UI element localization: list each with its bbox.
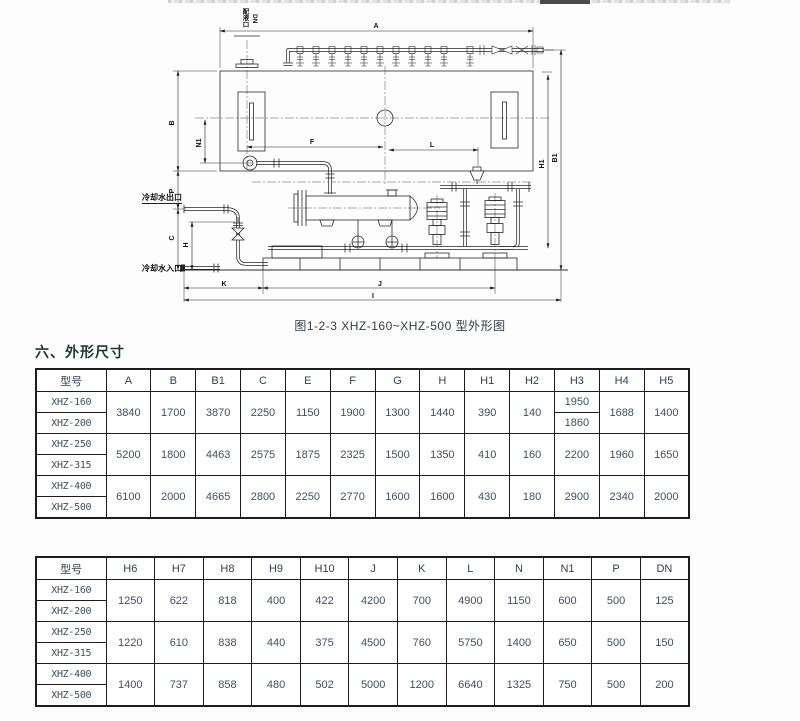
- value-cell: 2000: [644, 476, 689, 519]
- model-cell: XHZ-400: [36, 664, 106, 685]
- model-cell: XHZ-315: [36, 643, 106, 664]
- column-header: N1: [543, 557, 592, 580]
- value-cell: 5750: [446, 622, 495, 664]
- header-row: 型号H6H7H8H9H10JKLNN1PDN: [36, 557, 689, 580]
- column-header: P: [592, 557, 641, 580]
- value-cell: 6640: [446, 664, 495, 707]
- outline-drawing: A B N1 F L P C H H1 B1 K J I: [140, 6, 670, 312]
- column-header: H: [420, 369, 465, 392]
- table-row: XHZ-400610020004665280022502770160016004…: [36, 476, 689, 497]
- column-header: H4: [599, 369, 644, 392]
- outline-drawing-area: A B N1 F L P C H H1 B1 K J I: [140, 6, 670, 312]
- value-cell: 150: [640, 622, 689, 664]
- centerlines: [195, 40, 550, 258]
- value-cell: 1150: [285, 392, 330, 434]
- column-header: J: [349, 557, 398, 580]
- column-header: H9: [252, 557, 301, 580]
- value-cell: 422: [300, 580, 349, 622]
- column-header: B: [151, 369, 196, 392]
- clipped-text-artifact-dark: [540, 0, 590, 4]
- clipped-text-artifact: [168, 0, 730, 3]
- value-cell: 2000: [151, 476, 196, 519]
- value-cell: 760: [397, 622, 446, 664]
- value-cell: 1800: [151, 434, 196, 476]
- model-cell: XHZ-160: [36, 392, 106, 413]
- liquid-port-dn-label: DN: [251, 14, 258, 23]
- manual-page: { "colors": { "line": "#2a2a2a", "table_…: [0, 0, 800, 721]
- value-cell: 1200: [397, 664, 446, 707]
- value-cell: 1960: [599, 434, 644, 476]
- value-cell: 4200: [349, 580, 398, 622]
- column-header: 型号: [36, 557, 106, 580]
- value-cell: 430: [465, 476, 510, 519]
- value-cell: 3870: [196, 392, 241, 434]
- value-cell: 400: [252, 580, 301, 622]
- value-cell: 1440: [420, 392, 465, 434]
- column-header: H6: [106, 557, 155, 580]
- value-cell: 2200: [554, 434, 599, 476]
- value-cell: 3840: [106, 392, 151, 434]
- table-row: XHZ-250122061083844037545007605750140065…: [36, 622, 689, 643]
- value-cell: 500: [592, 580, 641, 622]
- column-header: N: [495, 557, 544, 580]
- value-cell: 5000: [349, 664, 398, 707]
- value-cell: 2340: [599, 476, 644, 519]
- value-cell: 838: [203, 622, 252, 664]
- value-cell: 1300: [375, 392, 420, 434]
- value-cell: 1150: [495, 580, 544, 622]
- plan-view: [220, 36, 533, 193]
- dim-label-c: C: [169, 235, 176, 240]
- dimension-table: 型号H6H7H8H9H10JKLNN1PDNXHZ-16012506228184…: [35, 556, 690, 707]
- model-cell: XHZ-250: [36, 434, 106, 455]
- dim-label-b: B: [169, 120, 176, 125]
- value-cell: 1350: [420, 434, 465, 476]
- value-cell: 180: [510, 476, 555, 519]
- column-header: F: [330, 369, 375, 392]
- value-cell: 600: [543, 580, 592, 622]
- value-cell: 4463: [196, 434, 241, 476]
- value-cell: 750: [543, 664, 592, 707]
- model-cell: XHZ-200: [36, 413, 106, 434]
- dimension-table-1-container: 型号ABB1CEFGHH1H2H3H4H5XHZ-160384017003870…: [35, 368, 690, 519]
- column-header: G: [375, 369, 420, 392]
- value-cell: 2575: [241, 434, 286, 476]
- figure-caption: 图1-2-3 XHZ-160~XHZ-500 型外形图: [140, 317, 660, 334]
- value-cell: 375: [300, 622, 349, 664]
- column-header: L: [446, 557, 495, 580]
- model-cell: XHZ-315: [36, 455, 106, 476]
- value-cell: 125: [640, 580, 689, 622]
- dim-label-l: L: [430, 142, 435, 149]
- column-header: E: [285, 369, 330, 392]
- value-cell: 1860: [554, 413, 599, 434]
- table-row: XHZ-160384017003870225011501900130014403…: [36, 392, 689, 413]
- value-cell: 2250: [241, 392, 286, 434]
- dim-label-j: J: [378, 281, 382, 288]
- dim-label-a: A: [373, 23, 378, 30]
- value-cell: 4900: [446, 580, 495, 622]
- section-heading: 六、外形尺寸: [35, 342, 125, 362]
- value-cell: 1688: [599, 392, 644, 434]
- model-cell: XHZ-200: [36, 601, 106, 622]
- value-cell: 1325: [495, 664, 544, 707]
- model-cell: XHZ-250: [36, 622, 106, 643]
- value-cell: 1400: [644, 392, 689, 434]
- value-cell: 1250: [106, 580, 155, 622]
- value-cell: 140: [510, 392, 555, 434]
- column-header: H3: [554, 369, 599, 392]
- header-row: 型号ABB1CEFGHH1H2H3H4H5: [36, 369, 689, 392]
- value-cell: 1600: [375, 476, 420, 519]
- value-cell: 650: [543, 622, 592, 664]
- value-cell: 700: [397, 580, 446, 622]
- dim-label-h: H: [183, 242, 190, 247]
- value-cell: 2770: [330, 476, 375, 519]
- column-header: H1: [465, 369, 510, 392]
- column-header: K: [397, 557, 446, 580]
- cooling-water-outlet-label: 冷却水出口: [142, 193, 182, 204]
- table-row: XHZ-250520018004463257518752325150013504…: [36, 434, 689, 455]
- dimension-table-2-container: 型号H6H7H8H9H10JKLNN1PDNXHZ-16012506228184…: [35, 556, 690, 707]
- value-cell: 1600: [420, 476, 465, 519]
- model-cell: XHZ-500: [36, 685, 106, 707]
- dim-label-i: I: [372, 293, 374, 300]
- value-cell: 1950: [554, 392, 599, 413]
- dim-label-f: F: [310, 139, 315, 146]
- value-cell: 622: [155, 580, 204, 622]
- dim-label-k: K: [221, 281, 226, 288]
- value-cell: 1400: [495, 622, 544, 664]
- cooling-water-inlet-label: 冷却水入口: [142, 264, 182, 273]
- model-cell: XHZ-400: [36, 476, 106, 497]
- value-cell: 390: [465, 392, 510, 434]
- value-cell: 2900: [554, 476, 599, 519]
- column-header: H2: [510, 369, 555, 392]
- value-cell: 858: [203, 664, 252, 707]
- column-header: H8: [203, 557, 252, 580]
- value-cell: 2325: [330, 434, 375, 476]
- value-cell: 500: [592, 664, 641, 707]
- liquid-port-label: 配液口: [241, 8, 248, 28]
- value-cell: 440: [252, 622, 301, 664]
- value-cell: 2250: [285, 476, 330, 519]
- model-cell: XHZ-500: [36, 497, 106, 519]
- column-header: H10: [300, 557, 349, 580]
- value-cell: 1900: [330, 392, 375, 434]
- value-cell: 5200: [106, 434, 151, 476]
- column-header: DN: [640, 557, 689, 580]
- value-cell: 1650: [644, 434, 689, 476]
- value-cell: 200: [640, 664, 689, 707]
- value-cell: 4665: [196, 476, 241, 519]
- value-cell: 6100: [106, 476, 151, 519]
- manifold-valves: [296, 45, 554, 66]
- dim-label-b1: B1: [552, 153, 559, 162]
- value-cell: 1875: [285, 434, 330, 476]
- value-cell: 1700: [151, 392, 196, 434]
- column-header: H5: [644, 369, 689, 392]
- value-cell: 818: [203, 580, 252, 622]
- value-cell: 610: [155, 622, 204, 664]
- value-cell: 1500: [375, 434, 420, 476]
- value-cell: 480: [252, 664, 301, 707]
- model-cell: XHZ-160: [36, 580, 106, 601]
- value-cell: 2800: [241, 476, 286, 519]
- column-header: C: [241, 369, 286, 392]
- value-cell: 500: [592, 622, 641, 664]
- value-cell: 737: [155, 664, 204, 707]
- table-row: XHZ-400140073785848050250001200664013257…: [36, 664, 689, 685]
- column-header: H7: [155, 557, 204, 580]
- value-cell: 410: [465, 434, 510, 476]
- value-cell: 160: [510, 434, 555, 476]
- dimensions: [173, 27, 566, 302]
- dim-label-h1: H1: [539, 159, 546, 168]
- value-cell: 1220: [106, 622, 155, 664]
- value-cell: 4500: [349, 622, 398, 664]
- table-row: XHZ-160125062281840042242007004900115060…: [36, 580, 689, 601]
- dim-label-n1: N1: [196, 138, 203, 147]
- column-header: A: [106, 369, 151, 392]
- column-header: B1: [196, 369, 241, 392]
- value-cell: 502: [300, 664, 349, 707]
- column-header: 型号: [36, 369, 106, 392]
- value-cell: 1400: [106, 664, 155, 707]
- dimension-table: 型号ABB1CEFGHH1H2H3H4H5XHZ-160384017003870…: [35, 368, 690, 519]
